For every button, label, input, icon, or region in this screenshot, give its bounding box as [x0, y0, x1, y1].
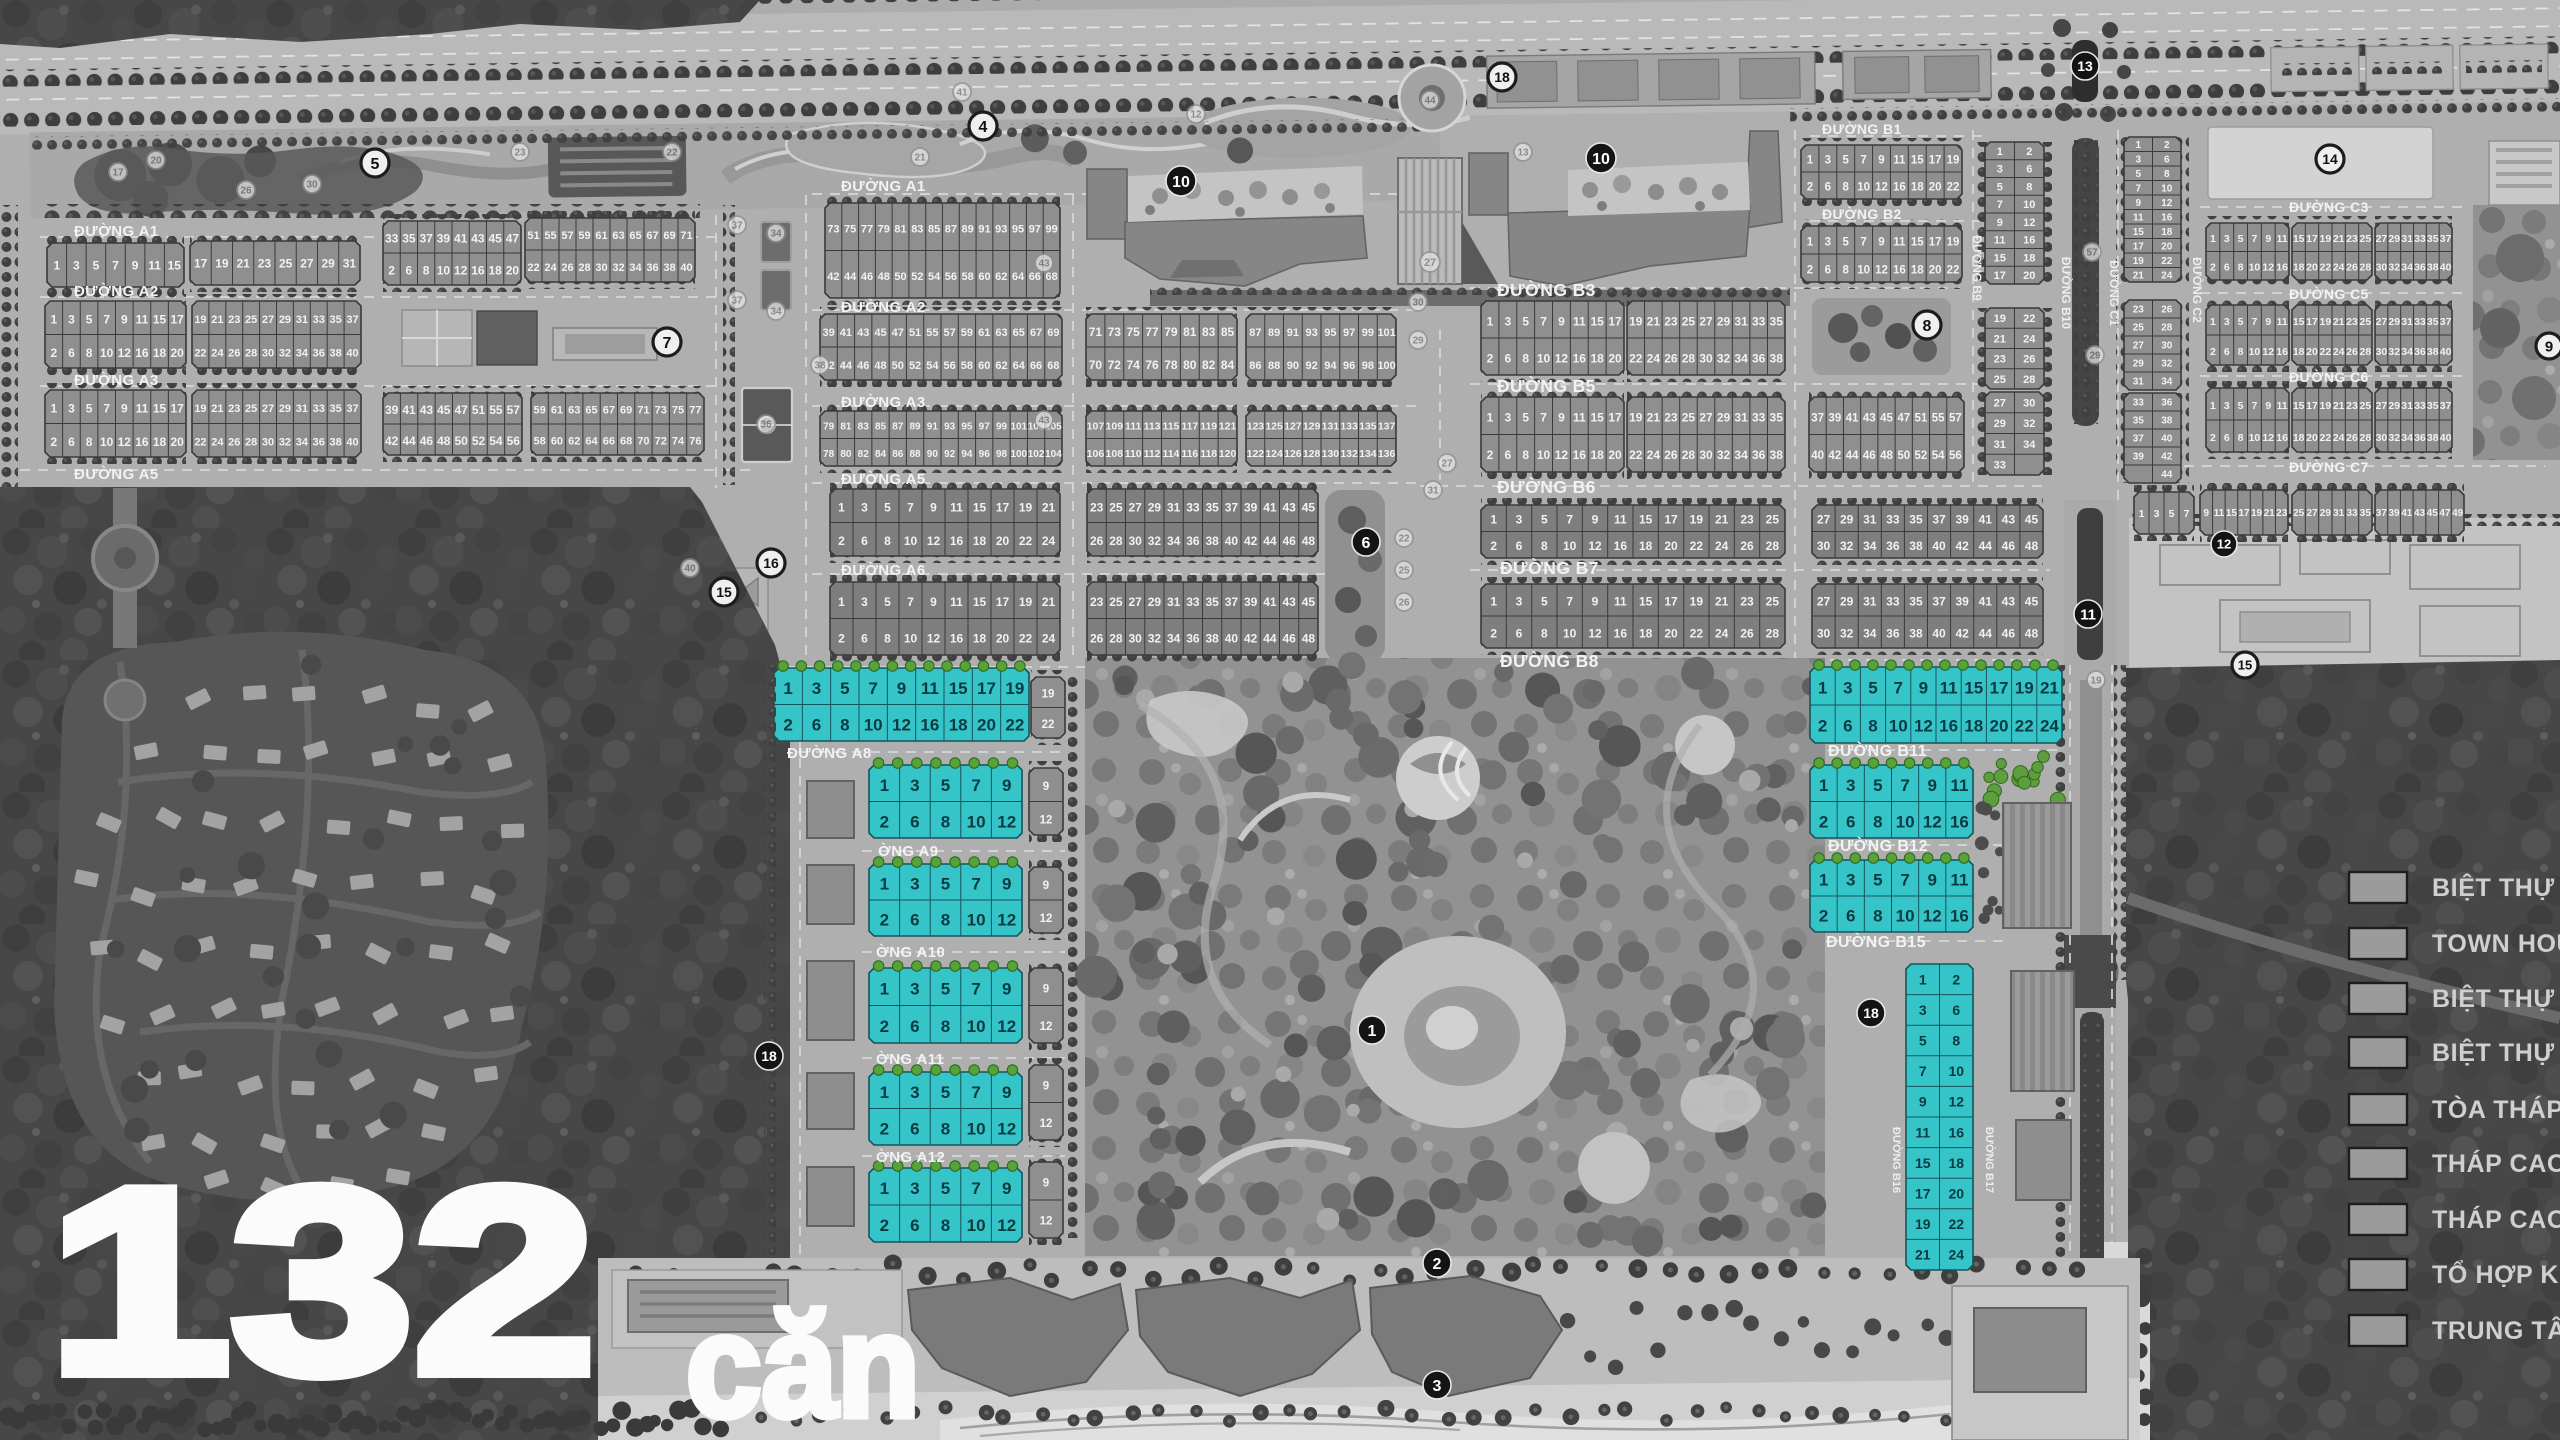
svg-text:1: 1 — [1819, 871, 1828, 890]
svg-text:19: 19 — [1629, 314, 1643, 328]
svg-text:5: 5 — [1843, 236, 1850, 248]
svg-text:30: 30 — [1817, 539, 1831, 553]
svg-text:18: 18 — [2293, 432, 2305, 444]
svg-text:35: 35 — [330, 403, 342, 415]
svg-text:ĐƯỜNG B8: ĐƯỜNG B8 — [1500, 650, 1599, 671]
svg-text:18: 18 — [1911, 182, 1924, 194]
svg-text:23: 23 — [1740, 513, 1754, 527]
svg-text:5: 5 — [1541, 513, 1548, 527]
svg-text:77: 77 — [861, 224, 873, 236]
svg-text:10: 10 — [967, 911, 986, 930]
svg-text:1: 1 — [2139, 508, 2145, 520]
svg-text:2: 2 — [1487, 351, 1494, 365]
svg-text:1: 1 — [880, 979, 889, 998]
svg-text:44: 44 — [402, 434, 416, 448]
svg-text:37: 37 — [2440, 400, 2452, 412]
svg-text:25: 25 — [2359, 233, 2371, 245]
svg-text:31: 31 — [1863, 513, 1877, 527]
svg-text:19: 19 — [2319, 316, 2331, 328]
svg-text:8: 8 — [884, 534, 891, 548]
svg-text:21: 21 — [211, 403, 223, 415]
svg-text:42: 42 — [1955, 539, 1969, 553]
svg-text:30: 30 — [2161, 341, 2173, 352]
svg-text:89: 89 — [1268, 327, 1280, 339]
svg-text:10: 10 — [904, 534, 918, 548]
svg-text:22: 22 — [1690, 627, 1704, 641]
svg-text:9: 9 — [1002, 776, 1011, 795]
svg-text:27: 27 — [262, 403, 274, 415]
svg-text:37: 37 — [346, 314, 358, 326]
svg-text:35: 35 — [1909, 513, 1923, 527]
svg-text:3: 3 — [1846, 871, 1855, 890]
svg-text:40: 40 — [2440, 432, 2452, 444]
svg-text:21: 21 — [211, 314, 223, 326]
svg-text:15: 15 — [153, 401, 167, 415]
svg-text:16: 16 — [763, 555, 779, 571]
svg-text:46: 46 — [857, 360, 869, 372]
svg-text:64: 64 — [585, 436, 598, 448]
svg-text:19: 19 — [1019, 500, 1033, 514]
svg-text:48: 48 — [874, 360, 886, 372]
svg-text:82: 82 — [1202, 358, 1216, 372]
svg-text:56: 56 — [1949, 450, 1962, 462]
svg-text:133: 133 — [1340, 421, 1358, 433]
svg-text:22: 22 — [1947, 264, 1960, 276]
svg-text:15: 15 — [2293, 316, 2305, 328]
svg-text:137: 137 — [1378, 421, 1396, 433]
svg-text:93: 93 — [995, 224, 1007, 236]
svg-text:2: 2 — [2026, 146, 2032, 158]
svg-text:7: 7 — [971, 979, 980, 998]
svg-text:8: 8 — [941, 1017, 950, 1036]
svg-text:46: 46 — [861, 271, 873, 283]
svg-text:61: 61 — [551, 405, 563, 417]
svg-text:16: 16 — [2276, 432, 2288, 444]
svg-text:11: 11 — [1573, 314, 1586, 328]
svg-text:111: 111 — [1125, 421, 1142, 433]
svg-text:1: 1 — [1818, 679, 1827, 698]
svg-text:68: 68 — [1047, 360, 1059, 372]
svg-text:ĐƯỜNG C7: ĐƯỜNG C7 — [2289, 458, 2369, 475]
svg-text:23: 23 — [2346, 316, 2358, 328]
svg-text:35: 35 — [2133, 416, 2145, 427]
svg-text:46: 46 — [1282, 534, 1296, 548]
svg-text:46: 46 — [420, 434, 434, 448]
svg-text:11: 11 — [1893, 236, 1906, 248]
svg-text:89: 89 — [962, 224, 974, 236]
svg-text:37: 37 — [2440, 233, 2452, 245]
svg-text:7: 7 — [907, 595, 914, 609]
svg-text:16: 16 — [950, 632, 964, 646]
svg-text:27: 27 — [2376, 233, 2388, 245]
svg-text:8: 8 — [86, 346, 93, 360]
svg-text:18: 18 — [153, 346, 167, 360]
svg-text:18: 18 — [949, 715, 968, 734]
svg-text:28: 28 — [578, 262, 590, 274]
svg-text:43: 43 — [1038, 259, 1050, 270]
svg-text:35: 35 — [1909, 595, 1923, 609]
svg-text:76: 76 — [689, 436, 701, 448]
svg-text:7: 7 — [2251, 233, 2257, 245]
svg-text:48: 48 — [2025, 627, 2039, 641]
svg-text:ĐƯỜNG B12: ĐƯỜNG B12 — [1828, 836, 1928, 855]
svg-text:16: 16 — [1614, 539, 1628, 553]
svg-text:27: 27 — [2306, 508, 2318, 519]
svg-text:7: 7 — [1540, 411, 1547, 425]
svg-text:22: 22 — [1629, 448, 1643, 462]
svg-text:26: 26 — [2346, 346, 2358, 358]
svg-text:9: 9 — [930, 500, 937, 514]
svg-text:33: 33 — [1752, 314, 1766, 328]
svg-text:42: 42 — [1244, 534, 1258, 548]
svg-text:5: 5 — [884, 500, 891, 514]
svg-text:5: 5 — [2135, 169, 2141, 180]
svg-text:ĐƯỜNG B2: ĐƯỜNG B2 — [1822, 205, 1902, 222]
svg-text:44: 44 — [2161, 470, 2173, 481]
svg-text:2: 2 — [880, 1216, 889, 1235]
svg-text:8: 8 — [941, 1119, 950, 1138]
svg-text:46: 46 — [2002, 627, 2016, 641]
svg-text:25: 25 — [1766, 595, 1780, 609]
svg-text:11: 11 — [950, 500, 963, 514]
svg-text:33: 33 — [2346, 508, 2358, 519]
svg-text:82: 82 — [858, 449, 870, 460]
svg-text:ĐƯỜNG B11: ĐƯỜNG B11 — [1828, 741, 1927, 760]
svg-text:3: 3 — [68, 401, 75, 415]
svg-text:19: 19 — [1042, 689, 1055, 701]
svg-text:31: 31 — [2401, 233, 2413, 245]
svg-text:16: 16 — [1939, 717, 1958, 736]
svg-text:24: 24 — [211, 437, 224, 449]
svg-text:66: 66 — [1029, 271, 1041, 283]
svg-text:120: 120 — [1219, 448, 1237, 460]
svg-text:9: 9 — [1043, 880, 1049, 892]
svg-text:5: 5 — [941, 776, 950, 795]
svg-text:39: 39 — [2389, 508, 2401, 519]
svg-text:5: 5 — [1997, 181, 2003, 193]
svg-text:9: 9 — [1558, 411, 1565, 425]
svg-text:66: 66 — [603, 436, 615, 448]
svg-text:16: 16 — [1573, 351, 1587, 365]
svg-text:2: 2 — [1952, 971, 1960, 987]
svg-text:84: 84 — [1221, 358, 1235, 372]
svg-text:28: 28 — [1766, 539, 1780, 553]
svg-text:5: 5 — [941, 979, 950, 998]
svg-text:11: 11 — [1893, 155, 1906, 167]
svg-text:51: 51 — [909, 327, 921, 339]
svg-text:2: 2 — [1490, 539, 1497, 553]
svg-text:17: 17 — [171, 401, 185, 415]
svg-text:32: 32 — [279, 437, 291, 449]
svg-text:30: 30 — [1128, 632, 1142, 646]
svg-text:7: 7 — [971, 1179, 980, 1198]
svg-text:55: 55 — [489, 403, 503, 417]
svg-text:7: 7 — [103, 401, 110, 415]
svg-text:33: 33 — [2414, 316, 2426, 328]
svg-text:15: 15 — [1994, 252, 2006, 264]
svg-text:25: 25 — [1109, 595, 1123, 609]
svg-text:36: 36 — [313, 348, 325, 360]
svg-text:71: 71 — [1089, 325, 1103, 339]
svg-text:23: 23 — [1740, 595, 1754, 609]
svg-text:ỜNG A10: ỜNG A10 — [876, 943, 945, 961]
svg-text:6: 6 — [812, 715, 821, 734]
svg-text:62: 62 — [568, 436, 580, 448]
svg-text:17: 17 — [996, 500, 1010, 514]
svg-text:16: 16 — [471, 264, 485, 278]
svg-text:11: 11 — [1950, 871, 1968, 890]
svg-text:36: 36 — [1186, 632, 1200, 646]
svg-text:17: 17 — [2306, 233, 2318, 245]
svg-text:3: 3 — [1825, 236, 1831, 248]
svg-text:83: 83 — [858, 421, 870, 432]
svg-text:1: 1 — [1490, 513, 1497, 527]
svg-text:20: 20 — [996, 632, 1010, 646]
svg-text:7: 7 — [971, 776, 980, 795]
svg-text:63: 63 — [568, 405, 580, 417]
svg-text:6: 6 — [1504, 351, 1511, 365]
svg-text:7: 7 — [2251, 400, 2257, 412]
svg-text:19: 19 — [1690, 595, 1704, 609]
svg-text:16: 16 — [2276, 346, 2288, 358]
svg-text:92: 92 — [1305, 360, 1317, 372]
svg-text:31: 31 — [1427, 486, 1439, 497]
svg-text:10: 10 — [2249, 262, 2261, 274]
svg-text:39: 39 — [1955, 513, 1969, 527]
svg-text:10: 10 — [1948, 1063, 1964, 1079]
svg-text:45: 45 — [1302, 595, 1316, 609]
svg-text:73: 73 — [827, 224, 839, 236]
svg-text:54: 54 — [926, 360, 939, 372]
svg-text:2: 2 — [50, 346, 57, 360]
svg-text:15: 15 — [1911, 155, 1924, 167]
svg-text:28: 28 — [1109, 534, 1123, 548]
svg-text:101: 101 — [1010, 421, 1027, 432]
svg-text:12: 12 — [2161, 198, 2173, 209]
svg-text:ỜNG A11: ỜNG A11 — [876, 1050, 944, 1068]
svg-text:28: 28 — [1682, 351, 1696, 365]
svg-text:29: 29 — [1412, 336, 1424, 347]
svg-text:19: 19 — [1005, 679, 1024, 698]
svg-text:ĐƯỜNG B9: ĐƯỜNG B9 — [1970, 235, 1985, 301]
svg-text:5: 5 — [884, 595, 891, 609]
svg-text:27: 27 — [2133, 341, 2145, 352]
svg-text:22: 22 — [2015, 717, 2034, 736]
svg-text:1: 1 — [2135, 140, 2141, 151]
svg-text:6: 6 — [2224, 346, 2230, 358]
svg-text:34: 34 — [770, 229, 782, 240]
svg-text:7: 7 — [971, 1083, 980, 1102]
svg-text:29: 29 — [2320, 508, 2332, 519]
svg-text:86: 86 — [1249, 360, 1261, 372]
svg-text:48: 48 — [1302, 632, 1316, 646]
svg-text:118: 118 — [1200, 448, 1217, 460]
svg-text:83: 83 — [911, 224, 923, 236]
svg-text:29: 29 — [1840, 513, 1854, 527]
svg-text:9: 9 — [1919, 1094, 1927, 1110]
svg-text:15: 15 — [2226, 508, 2238, 519]
svg-text:11: 11 — [148, 258, 161, 272]
svg-text:3: 3 — [68, 312, 75, 326]
svg-text:51: 51 — [527, 230, 539, 242]
svg-text:3: 3 — [910, 875, 919, 894]
svg-text:109: 109 — [1106, 421, 1124, 433]
svg-text:73: 73 — [655, 405, 667, 417]
svg-text:7: 7 — [1997, 199, 2003, 211]
svg-text:7: 7 — [2184, 508, 2190, 520]
svg-text:24: 24 — [1042, 534, 1056, 548]
svg-text:57: 57 — [2086, 248, 2098, 259]
svg-text:102: 102 — [1028, 449, 1045, 460]
svg-text:11: 11 — [2080, 606, 2096, 623]
svg-text:24: 24 — [2040, 717, 2059, 736]
svg-text:24: 24 — [544, 262, 557, 274]
svg-text:1: 1 — [1819, 776, 1828, 795]
svg-text:19: 19 — [2319, 233, 2331, 245]
svg-text:117: 117 — [1181, 421, 1198, 433]
svg-text:42: 42 — [1955, 627, 1969, 641]
svg-text:9: 9 — [1919, 679, 1928, 698]
svg-text:31: 31 — [1863, 595, 1877, 609]
svg-text:11: 11 — [2133, 212, 2144, 223]
svg-text:22: 22 — [1947, 182, 1960, 194]
svg-text:7: 7 — [1900, 871, 1909, 890]
svg-text:12: 12 — [118, 346, 132, 360]
svg-text:2: 2 — [50, 435, 57, 449]
svg-text:BIỆT THỰ SO: BIỆT THỰ SO — [2432, 872, 2560, 902]
svg-text:6: 6 — [2224, 432, 2230, 444]
svg-text:41: 41 — [840, 327, 852, 339]
svg-text:15: 15 — [1964, 679, 1983, 698]
svg-text:17: 17 — [1664, 513, 1678, 527]
svg-text:12: 12 — [1555, 448, 1569, 462]
svg-text:63: 63 — [612, 230, 624, 242]
svg-text:37: 37 — [1932, 595, 1946, 609]
svg-text:2: 2 — [880, 1119, 889, 1138]
svg-text:7: 7 — [907, 500, 914, 514]
svg-text:15: 15 — [973, 595, 987, 609]
svg-text:22: 22 — [1690, 539, 1704, 553]
svg-text:17: 17 — [194, 256, 208, 270]
svg-text:22: 22 — [1629, 351, 1643, 365]
svg-text:8: 8 — [1843, 182, 1850, 194]
svg-text:11: 11 — [2277, 400, 2288, 412]
svg-text:29: 29 — [1994, 418, 2006, 430]
svg-text:10: 10 — [100, 435, 114, 449]
svg-text:18: 18 — [153, 435, 167, 449]
svg-text:41: 41 — [1846, 412, 1859, 424]
svg-text:47: 47 — [892, 327, 904, 339]
svg-text:8: 8 — [884, 632, 891, 646]
svg-text:12: 12 — [1875, 182, 1888, 194]
svg-text:5: 5 — [941, 1179, 950, 1198]
svg-text:91: 91 — [927, 421, 939, 432]
svg-text:ĐƯỜNG B5: ĐƯỜNG B5 — [1497, 375, 1596, 396]
svg-text:29: 29 — [2133, 359, 2145, 370]
svg-text:11: 11 — [136, 401, 149, 415]
svg-text:77: 77 — [689, 405, 701, 417]
svg-text:26: 26 — [1664, 351, 1678, 365]
svg-text:15: 15 — [949, 679, 968, 698]
svg-text:26: 26 — [2161, 305, 2173, 316]
svg-text:35: 35 — [330, 314, 342, 326]
svg-text:TÒA THÁP C: TÒA THÁP C — [2432, 1094, 2560, 1124]
svg-text:22: 22 — [2161, 256, 2173, 267]
svg-text:28: 28 — [2023, 374, 2035, 386]
svg-text:42: 42 — [827, 271, 839, 283]
svg-text:ĐƯỜNG B10: ĐƯỜNG B10 — [2059, 257, 2074, 330]
svg-text:31: 31 — [343, 256, 357, 270]
svg-text:21: 21 — [1042, 500, 1056, 514]
svg-text:13: 13 — [1517, 148, 1529, 159]
svg-text:29: 29 — [279, 314, 291, 326]
svg-text:6: 6 — [2026, 164, 2032, 176]
svg-text:25: 25 — [245, 403, 257, 415]
svg-text:44: 44 — [840, 360, 853, 372]
svg-text:87: 87 — [892, 421, 904, 432]
svg-text:12: 12 — [2023, 217, 2035, 229]
svg-text:19: 19 — [1947, 155, 1960, 167]
svg-text:29: 29 — [2089, 351, 2101, 362]
svg-text:1: 1 — [1490, 595, 1497, 609]
svg-text:19: 19 — [2251, 508, 2263, 519]
svg-text:107: 107 — [1087, 421, 1105, 433]
svg-text:52: 52 — [472, 434, 486, 448]
svg-text:37: 37 — [2440, 316, 2452, 328]
svg-text:30: 30 — [1699, 351, 1713, 365]
svg-text:33: 33 — [2414, 233, 2426, 245]
svg-text:20: 20 — [1990, 717, 2009, 736]
svg-text:28: 28 — [2359, 432, 2371, 444]
svg-text:34: 34 — [2023, 439, 2036, 451]
svg-text:29: 29 — [2388, 316, 2400, 328]
svg-text:2: 2 — [2210, 262, 2216, 274]
svg-text:6: 6 — [1516, 539, 1523, 553]
svg-text:35: 35 — [402, 232, 416, 246]
svg-text:28: 28 — [1766, 627, 1780, 641]
svg-text:6: 6 — [1516, 627, 1523, 641]
svg-text:2: 2 — [838, 534, 845, 548]
svg-text:25: 25 — [279, 256, 293, 270]
svg-text:29: 29 — [1717, 314, 1731, 328]
svg-text:77: 77 — [1145, 325, 1159, 339]
svg-text:34: 34 — [1734, 351, 1748, 365]
svg-text:8: 8 — [1873, 812, 1882, 831]
svg-text:79: 79 — [878, 224, 890, 236]
svg-text:17: 17 — [2306, 316, 2318, 328]
svg-text:26: 26 — [240, 186, 252, 197]
svg-text:3: 3 — [910, 776, 919, 795]
svg-text:7: 7 — [868, 679, 877, 698]
svg-text:30: 30 — [1817, 627, 1831, 641]
svg-text:55: 55 — [926, 327, 938, 339]
svg-text:40: 40 — [1932, 627, 1946, 641]
svg-text:32: 32 — [2388, 432, 2400, 444]
svg-text:22: 22 — [666, 148, 678, 159]
svg-text:71: 71 — [637, 405, 649, 417]
svg-text:41: 41 — [402, 403, 416, 417]
svg-text:10: 10 — [1889, 717, 1908, 736]
svg-text:18: 18 — [973, 632, 987, 646]
svg-text:19: 19 — [2090, 676, 2102, 687]
svg-text:26: 26 — [1664, 448, 1678, 462]
svg-text:1: 1 — [1807, 236, 1814, 248]
svg-text:26: 26 — [1740, 627, 1754, 641]
svg-text:5: 5 — [1873, 776, 1882, 795]
svg-text:132: 132 — [48, 1133, 596, 1428]
svg-text:37: 37 — [1225, 595, 1239, 609]
svg-text:46: 46 — [2002, 539, 2016, 553]
